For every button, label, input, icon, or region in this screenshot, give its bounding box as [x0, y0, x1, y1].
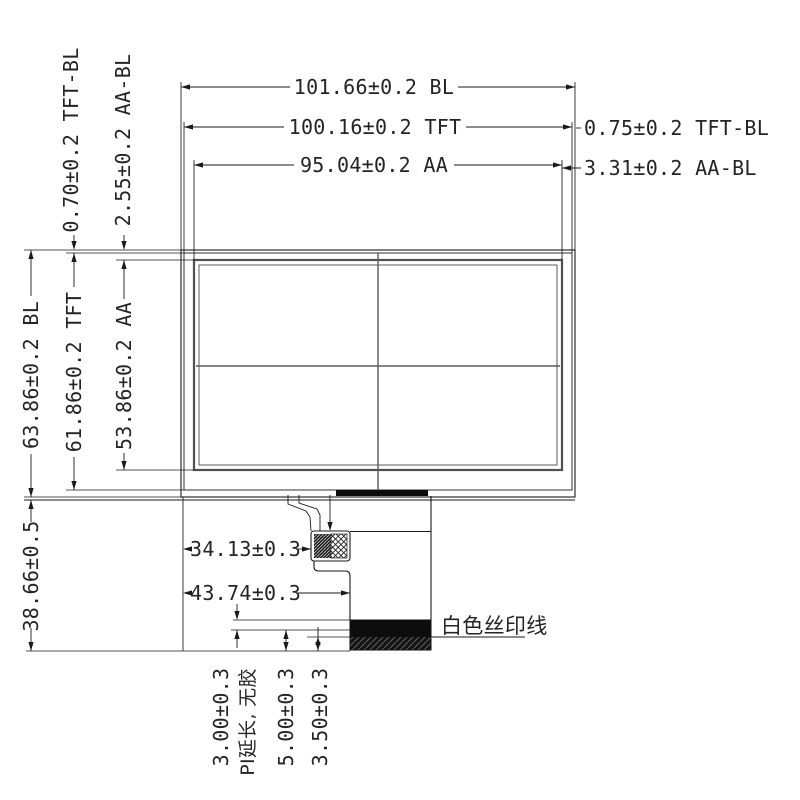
- connector-hatch-dense: [314, 534, 331, 558]
- dim-tft-width: 100.16±0.2 TFT: [289, 115, 462, 139]
- dim-tft-bl-top: 0.70±0.2 TFT-BL: [59, 47, 83, 232]
- fpc-neck-edge: [314, 561, 350, 620]
- dim-bl-height: 63.86±0.2 BL: [19, 301, 43, 449]
- connector-hatch-weave: [331, 534, 347, 558]
- drawing-canvas: 101.66±0.2 BL 100.16±0.2 TFT 95.04±0.2 A…: [0, 0, 800, 800]
- dim-aa-height: 53.86±0.2 AA: [112, 302, 136, 450]
- panel-outline: [24, 250, 575, 500]
- dim-connector-offset: 34.13±0.3: [190, 537, 301, 561]
- dim-total-height: 38.66±0.5: [19, 520, 43, 631]
- dim-pi-extension: 3.00±0.3: [209, 668, 233, 767]
- dim-bl-width: 101.66±0.2 BL: [294, 75, 454, 99]
- dim-silkscreen-offset: 3.50±0.3: [308, 668, 332, 767]
- fpc-end-stiffener: [350, 620, 431, 637]
- fpc-end-contacts: [350, 637, 431, 650]
- dim-tft-bl-right: 0.75±0.2 TFT-BL: [584, 116, 769, 140]
- dim-aa-bl-top: 2.55±0.2 AA-BL: [111, 54, 135, 227]
- active-area: [194, 253, 562, 490]
- silkscreen-label: 白色丝印线: [441, 614, 548, 638]
- dim-fpc-edge-offset: 43.74±0.3: [190, 581, 301, 605]
- dim-contact-length: 5.00±0.3: [274, 668, 298, 767]
- lcd-outline-drawing: 101.66±0.2 BL 100.16±0.2 TFT 95.04±0.2 A…: [0, 0, 800, 800]
- dim-tft-height: 61.86±0.2 TFT: [62, 292, 86, 452]
- dim-aa-width: 95.04±0.2 AA: [300, 153, 448, 177]
- dim-aa-bl-right: 3.31±0.2 AA-BL: [584, 156, 757, 180]
- bonding-bar: [336, 490, 428, 496]
- dim-pi-extension-note: PI延长, 无胶: [237, 668, 259, 776]
